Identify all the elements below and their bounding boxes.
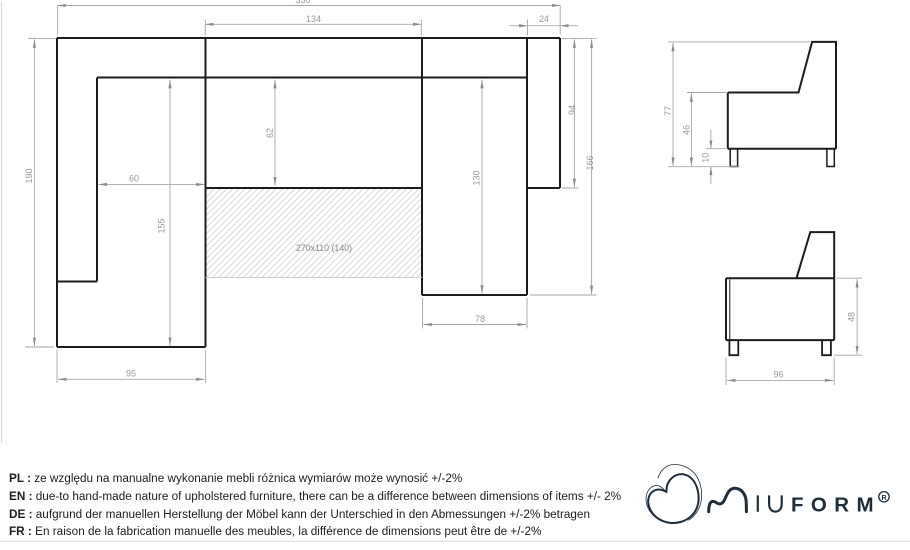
- svg-text:R: R: [881, 495, 886, 502]
- svg-text:60: 60: [129, 174, 139, 184]
- svg-text:166: 166: [585, 155, 595, 170]
- svg-text:48: 48: [846, 312, 856, 322]
- svg-text:270x110 (140): 270x110 (140): [296, 243, 352, 253]
- svg-text:46: 46: [681, 125, 691, 135]
- svg-text:FORM: FORM: [791, 494, 881, 517]
- svg-text:24: 24: [539, 14, 549, 24]
- svg-text:94: 94: [567, 105, 577, 115]
- svg-text:190: 190: [24, 168, 34, 183]
- svg-text:62: 62: [265, 128, 275, 138]
- svg-text:78: 78: [475, 314, 485, 324]
- svg-text:10: 10: [700, 153, 710, 163]
- svg-text:155: 155: [156, 218, 166, 233]
- svg-text:95: 95: [126, 369, 136, 379]
- svg-text:96: 96: [773, 370, 783, 380]
- svg-text:130: 130: [471, 170, 481, 185]
- svg-text:330: 330: [295, 0, 310, 5]
- svg-text:134: 134: [306, 14, 321, 24]
- svg-text:77: 77: [663, 106, 673, 116]
